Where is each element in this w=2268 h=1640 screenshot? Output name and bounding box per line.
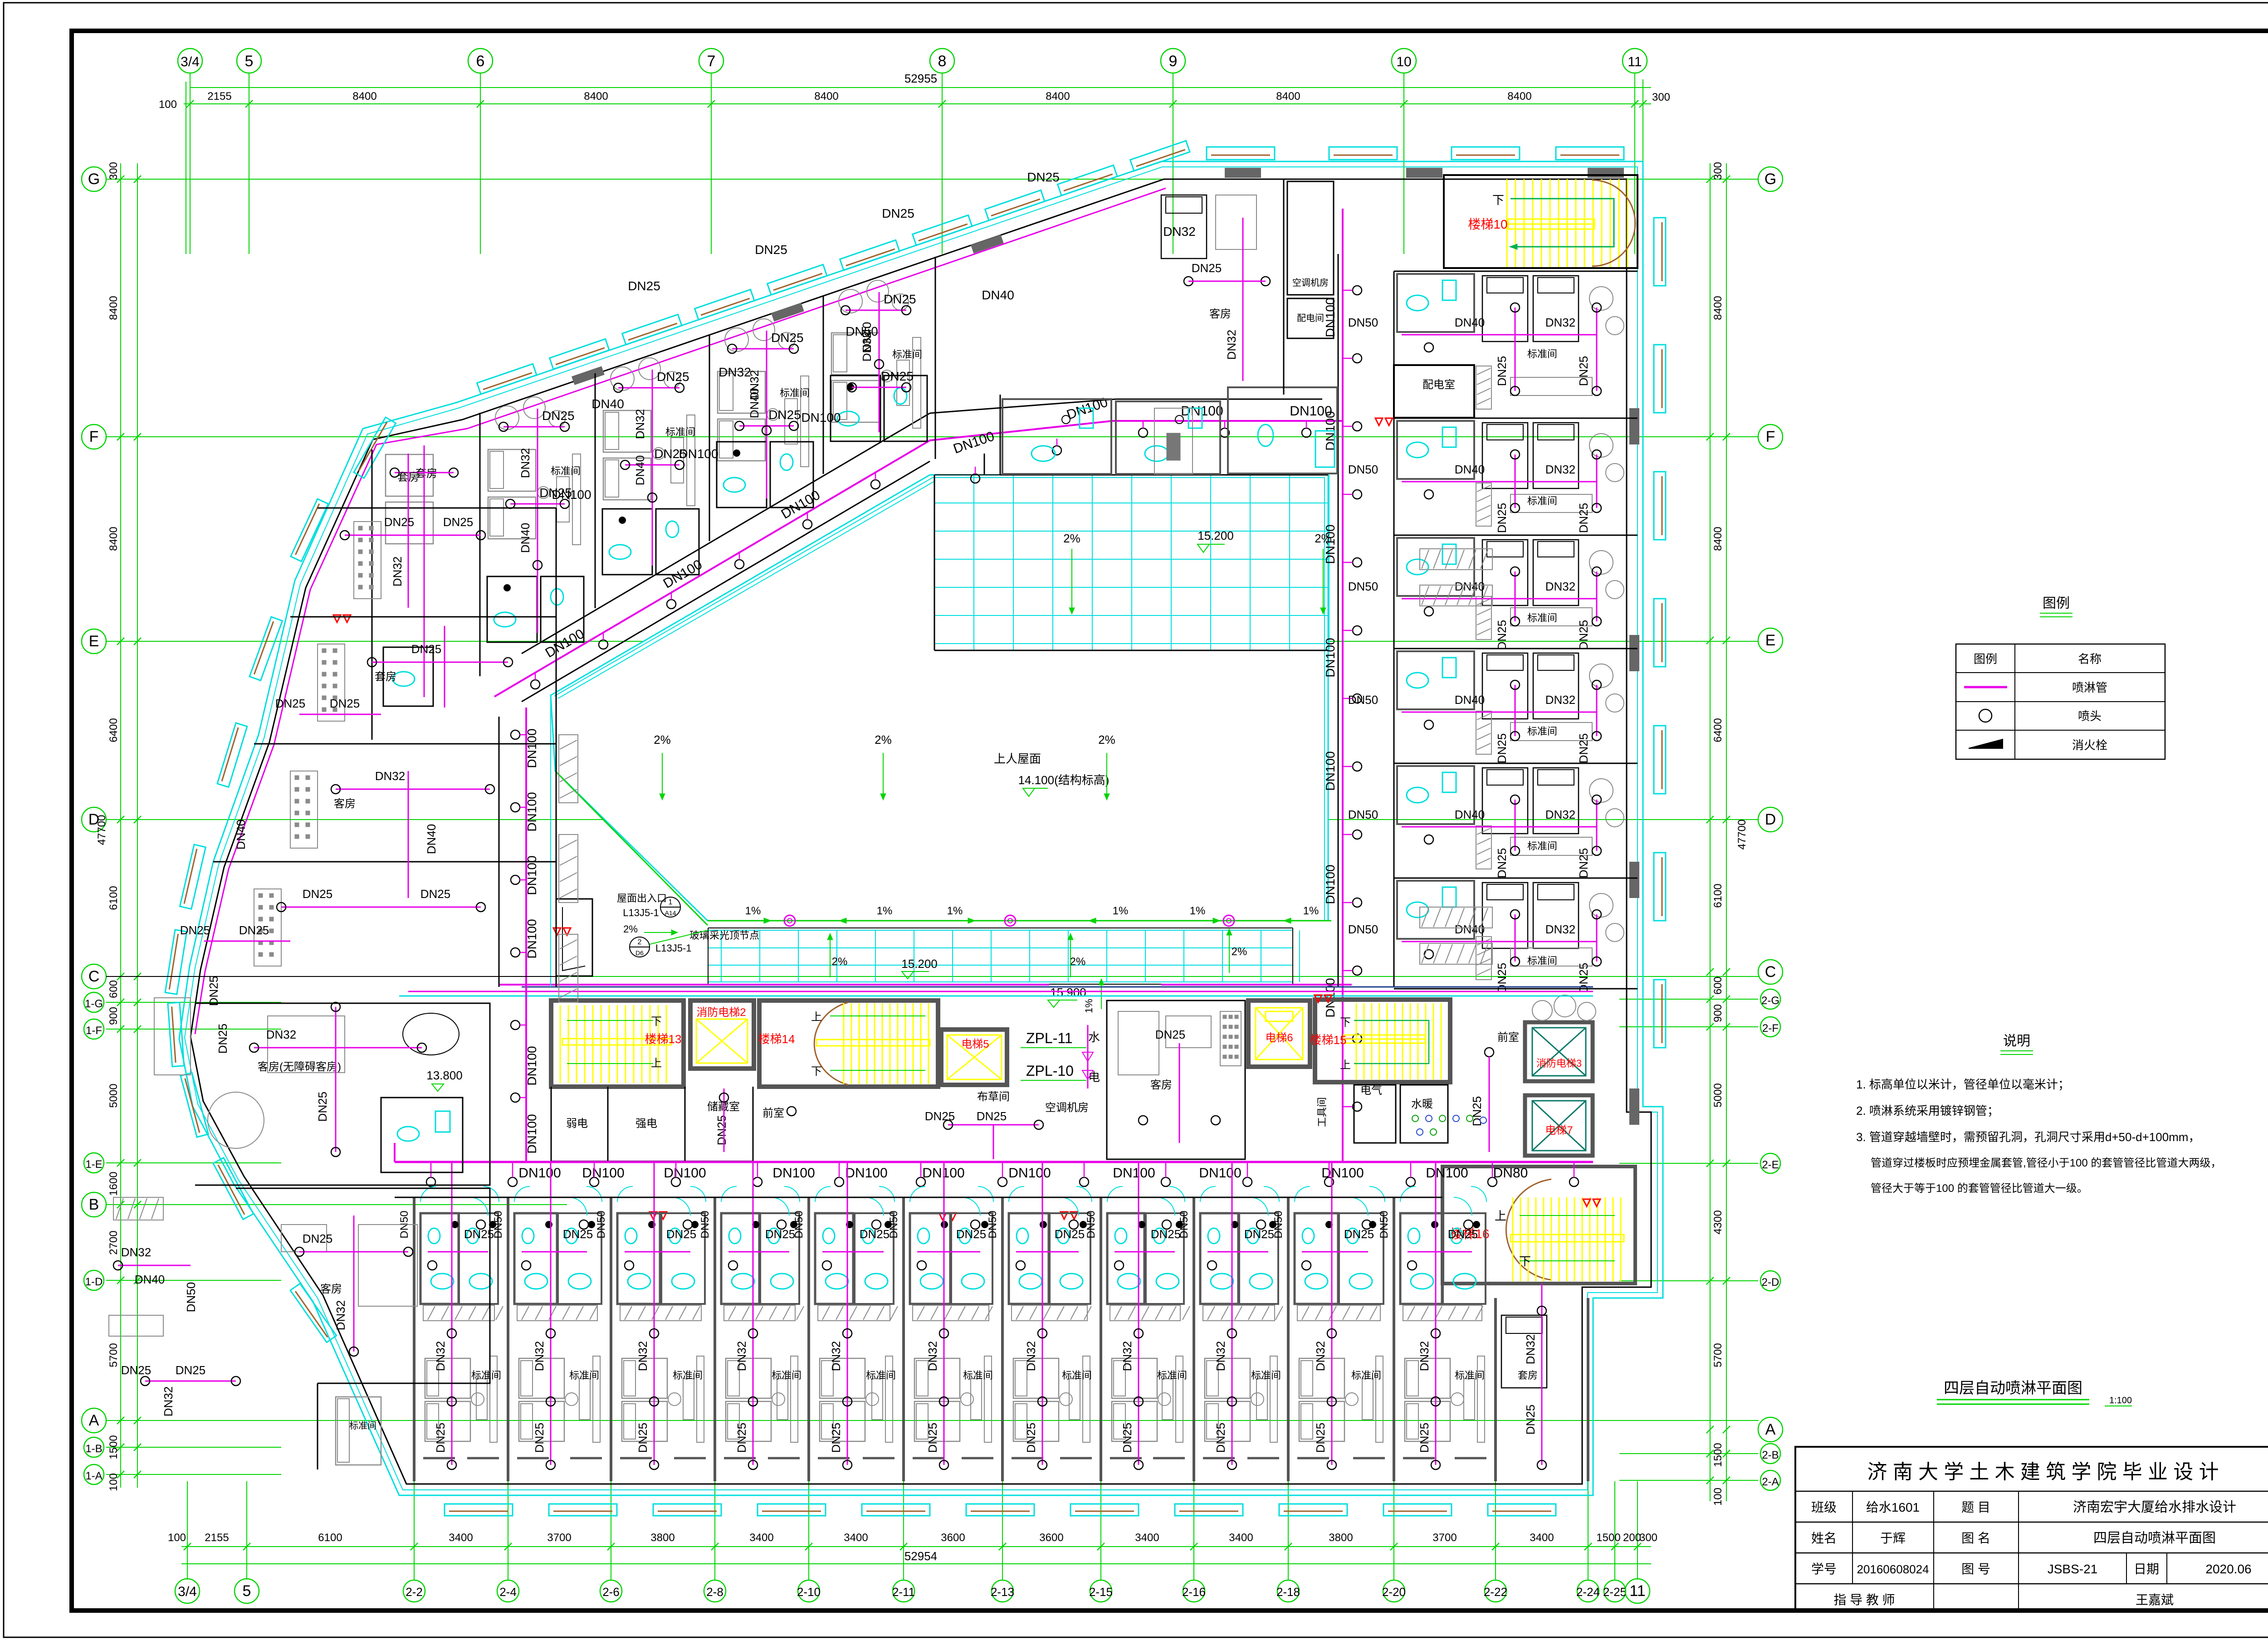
svg-text:900: 900 [108,1007,120,1025]
svg-text:标准间: 标准间 [772,1370,802,1381]
svg-text:2%: 2% [1232,946,1247,958]
svg-text:DN32: DN32 [633,409,647,439]
svg-text:套房: 套房 [1518,1370,1538,1381]
svg-text:DN32: DN32 [636,1341,650,1371]
svg-text:下: 下 [1492,193,1504,207]
svg-text:DN25: DN25 [1344,1227,1374,1241]
svg-text:电梯7: 电梯7 [1545,1124,1573,1137]
svg-text:DN40: DN40 [1455,808,1485,821]
svg-text:3400: 3400 [1229,1532,1253,1544]
svg-text:下: 下 [651,1015,662,1028]
svg-text:客房: 客房 [1209,308,1231,320]
svg-text:ZPL-11: ZPL-11 [1026,1030,1073,1046]
svg-text:A: A [1765,1421,1776,1438]
svg-text:2%: 2% [832,956,848,968]
svg-text:图例: 图例 [1974,652,1997,666]
svg-text:DN25: DN25 [1448,1227,1478,1241]
svg-text:DN32: DN32 [1214,1341,1227,1371]
svg-text:DN50: DN50 [1348,693,1378,707]
svg-text:1. 标高单位以米计，管径单位以毫米计；: 1. 标高单位以米计，管径单位以毫米计； [1856,1078,2070,1091]
svg-text:标准间: 标准间 [1527,726,1557,737]
svg-text:C: C [1765,963,1776,981]
svg-text:2-A: 2-A [1762,1476,1779,1488]
svg-text:标准间: 标准间 [892,349,922,360]
svg-text:11: 11 [1628,54,1642,69]
svg-text:3800: 3800 [650,1532,675,1544]
svg-text:说明: 说明 [2003,1034,2030,1049]
svg-text:DN100: DN100 [1323,638,1337,677]
svg-text:DN25: DN25 [420,887,450,901]
svg-text:DN32: DN32 [1524,1334,1537,1364]
svg-text:济 南 大 学 土 木 建 筑 学 院 毕 业 设 计: 济 南 大 学 土 木 建 筑 学 院 毕 业 设 计 [1867,1461,2219,1483]
svg-text:DN50: DN50 [595,1210,607,1238]
svg-text:空调机房: 空调机房 [1292,278,1329,288]
svg-text:学号: 学号 [1811,1562,1837,1576]
svg-text:下: 下 [1519,1254,1531,1268]
svg-text:DN32: DN32 [1314,1341,1327,1371]
svg-text:DN25: DN25 [384,515,414,529]
svg-text:6100: 6100 [318,1532,342,1544]
svg-text:工具间: 工具间 [1316,1097,1328,1127]
svg-text:DN25: DN25 [275,697,305,710]
svg-text:标准间: 标准间 [1527,612,1557,624]
svg-text:3400: 3400 [1135,1532,1159,1544]
svg-text:2%: 2% [1070,956,1086,968]
svg-text:8400: 8400 [1507,90,1531,102]
svg-text:2-D: 2-D [1762,1276,1779,1289]
svg-text:DN25: DN25 [881,369,914,383]
svg-text:DN25: DN25 [768,408,801,422]
svg-text:52955: 52955 [904,72,937,85]
svg-text:标准间: 标准间 [1251,1370,1281,1381]
svg-text:标准间: 标准间 [569,1370,599,1381]
svg-text:玻璃采光顶节点: 玻璃采光顶节点 [689,930,759,941]
svg-text:DN25: DN25 [666,1227,696,1241]
svg-text:屋面出入口: 屋面出入口 [617,893,667,904]
svg-text:1-A: 1-A [85,1470,102,1482]
svg-text:DN25: DN25 [1470,1096,1484,1126]
svg-text:DN100: DN100 [1323,524,1337,564]
svg-text:DN25: DN25 [1577,620,1590,650]
svg-text:DN25: DN25 [1314,1423,1327,1453]
svg-text:DN32: DN32 [719,365,751,379]
svg-text:标准间: 标准间 [1527,348,1557,360]
svg-text:DN50: DN50 [699,1210,711,1238]
svg-text:300: 300 [1652,91,1670,103]
svg-text:DN50: DN50 [1348,922,1378,936]
svg-text:DN25: DN25 [1577,848,1590,878]
svg-text:DN32: DN32 [1417,1341,1431,1371]
svg-text:给水1601: 给水1601 [1866,1500,1920,1514]
svg-text:标准间: 标准间 [551,465,581,477]
svg-text:DN25: DN25 [1417,1423,1431,1453]
svg-text:6100: 6100 [108,886,120,910]
svg-text:8: 8 [938,53,947,70]
svg-text:100: 100 [1712,1488,1724,1506]
svg-text:200: 200 [1623,1532,1641,1544]
svg-text:下: 下 [811,1065,822,1078]
svg-text:DN100: DN100 [518,1166,561,1181]
svg-text:2155: 2155 [207,90,231,102]
svg-text:2-20: 2-20 [1382,1585,1406,1599]
svg-text:名称: 名称 [2078,652,2102,666]
svg-text:DN50: DN50 [987,1210,999,1238]
svg-text:DN100: DN100 [1323,298,1337,337]
svg-text:8400: 8400 [108,527,120,551]
svg-text:2155: 2155 [205,1532,229,1544]
svg-text:DN32: DN32 [391,556,404,586]
svg-text:DN25: DN25 [1244,1227,1274,1241]
svg-text:DN25: DN25 [715,1115,728,1145]
svg-text:2-13: 2-13 [991,1585,1014,1599]
svg-text:DN25: DN25 [1577,733,1590,763]
svg-text:1-F: 1-F [86,1025,102,1037]
svg-text:DN100: DN100 [552,488,591,502]
svg-text:DN25: DN25 [1495,848,1509,878]
svg-text:DN32: DN32 [1545,922,1575,936]
svg-text:标准间: 标准间 [1062,1370,1092,1381]
svg-text:DN50: DN50 [184,1282,198,1312]
svg-text:2-10: 2-10 [797,1585,821,1599]
svg-text:DN40: DN40 [425,824,438,854]
svg-text:四层自动喷淋平面图: 四层自动喷淋平面图 [1944,1380,2082,1397]
svg-text:13.800: 13.800 [426,1069,463,1082]
svg-text:DN25: DN25 [542,409,575,423]
svg-text:DN40: DN40 [518,523,532,553]
svg-text:6400: 6400 [108,718,120,742]
svg-text:DN25: DN25 [1524,1405,1537,1435]
svg-text:B: B [89,1196,99,1213]
svg-text:上人屋面: 上人屋面 [994,752,1041,766]
svg-text:8400: 8400 [1276,90,1300,102]
svg-text:四层自动喷淋平面图: 四层自动喷淋平面图 [2093,1531,2216,1546]
svg-text:15.200: 15.200 [1198,529,1234,542]
svg-text:3400: 3400 [449,1532,473,1544]
svg-text:300: 300 [1639,1532,1657,1544]
svg-text:DN25: DN25 [1155,1028,1185,1041]
svg-text:DN25: DN25 [239,923,269,937]
svg-text:DN32: DN32 [121,1245,151,1259]
svg-text:2%: 2% [875,733,892,747]
svg-text:DN25: DN25 [443,515,473,529]
svg-text:喷淋管: 喷淋管 [2072,681,2107,694]
svg-text:1-D: 1-D [85,1276,103,1288]
svg-text:2-24: 2-24 [1576,1585,1600,1599]
svg-text:标准间: 标准间 [1527,495,1557,507]
svg-text:DN40: DN40 [234,820,248,849]
svg-text:DN100: DN100 [525,1046,539,1085]
svg-text:DN32: DN32 [266,1028,296,1041]
svg-text:DN32: DN32 [1545,808,1575,821]
svg-text:DN25: DN25 [1495,356,1509,386]
svg-text:DN25: DN25 [1151,1227,1181,1241]
svg-text:客房: 客房 [334,798,356,810]
svg-text:DN25: DN25 [1214,1423,1227,1453]
svg-text:DN100: DN100 [1321,1166,1364,1181]
svg-text:DN32: DN32 [1545,316,1575,329]
svg-text:52954: 52954 [904,1549,937,1563]
svg-text:2-11: 2-11 [892,1585,915,1599]
svg-text:消防电梯3: 消防电梯3 [1536,1058,1582,1069]
svg-text:DN100: DN100 [1008,1166,1051,1181]
svg-text:100: 100 [168,1532,186,1544]
svg-text:标准间: 标准间 [471,1370,501,1381]
svg-text:DN50: DN50 [492,1210,504,1238]
svg-text:客房(无障碍客房): 客房(无障碍客房) [258,1061,341,1073]
svg-text:前室: 前室 [1497,1031,1519,1044]
svg-text:DN32: DN32 [735,1341,748,1371]
svg-text:2-25: 2-25 [1603,1585,1627,1599]
svg-text:5: 5 [243,1582,251,1600]
svg-text:8400: 8400 [108,296,120,320]
svg-text:11: 11 [1629,1582,1645,1600]
svg-text:DN25: DN25 [1024,1423,1038,1453]
svg-text:电: 电 [1088,1070,1100,1084]
svg-text:DN25: DN25 [316,1092,329,1122]
svg-text:DN32: DN32 [518,448,532,478]
svg-text:3700: 3700 [547,1532,571,1544]
svg-text:上: 上 [1340,1059,1351,1071]
svg-text:DN32: DN32 [375,769,405,783]
svg-text:DN25: DN25 [1577,963,1590,993]
svg-text:DN25: DN25 [1495,963,1509,993]
svg-text:DN25: DN25 [1027,170,1060,184]
svg-text:2-16: 2-16 [1182,1585,1206,1599]
svg-text:3/4: 3/4 [178,1584,197,1599]
svg-text:弱电: 弱电 [566,1118,588,1130]
svg-text:8400: 8400 [352,90,376,102]
svg-text:2. 喷淋系统采用镀锌钢管；: 2. 喷淋系统采用镀锌钢管； [1856,1104,1999,1118]
svg-text:标准间: 标准间 [349,1420,376,1431]
svg-text:2-4: 2-4 [499,1585,517,1599]
svg-text:1: 1 [669,898,673,906]
svg-text:电气: 电气 [1360,1084,1382,1097]
svg-text:1%: 1% [1113,905,1129,917]
svg-text:DN25: DN25 [121,1363,151,1377]
svg-text:标准间: 标准间 [1157,1370,1187,1381]
svg-text:客房: 客房 [1150,1079,1172,1091]
svg-text:DN40: DN40 [982,288,1014,302]
svg-text:3700: 3700 [1432,1532,1457,1544]
svg-text:DN25: DN25 [180,923,210,937]
svg-text:E: E [1765,632,1776,649]
svg-text:DN50: DN50 [1272,1210,1285,1238]
svg-text:DN100: DN100 [1323,751,1337,791]
svg-text:DN40: DN40 [591,397,624,411]
svg-text:DN100: DN100 [525,792,539,831]
svg-text:DN25: DN25 [956,1227,986,1241]
svg-text:8400: 8400 [1712,296,1724,320]
svg-text:1%: 1% [877,905,893,917]
svg-text:6100: 6100 [1712,883,1724,908]
svg-text:标准间: 标准间 [1527,840,1557,852]
svg-text:班级: 班级 [1811,1500,1837,1514]
svg-text:DN100: DN100 [679,447,718,461]
svg-text:楼梯14: 楼梯14 [758,1032,795,1046]
svg-text:1%: 1% [745,905,761,917]
svg-text:ZPL-10: ZPL-10 [1026,1063,1074,1079]
svg-text:300: 300 [1712,162,1724,180]
svg-text:A14: A14 [665,909,676,917]
svg-text:DN25: DN25 [657,370,689,384]
svg-text:1500: 1500 [1596,1532,1620,1544]
svg-text:客房: 客房 [320,1283,342,1295]
svg-text:3. 管道穿越墙壁时，需预留孔洞，孔洞尺寸采用d+50-d+: 3. 管道穿越墙壁时，需预留孔洞，孔洞尺寸采用d+50-d+100mm， [1856,1130,2200,1144]
svg-text:2-G: 2-G [1761,995,1779,1007]
svg-text:100: 100 [108,1473,120,1491]
svg-text:DN32: DN32 [1545,693,1575,707]
svg-text:DN40: DN40 [1455,316,1485,329]
svg-text:DN50: DN50 [1348,316,1378,329]
svg-text:DN50: DN50 [1085,1210,1097,1238]
svg-text:D6: D6 [635,949,644,957]
svg-text:2-6: 2-6 [602,1585,620,1599]
svg-text:8400: 8400 [814,90,838,102]
svg-text:DN100: DN100 [582,1166,624,1181]
svg-text:DN25: DN25 [771,331,804,345]
svg-text:6: 6 [476,53,485,70]
svg-text:DN25: DN25 [1192,261,1222,275]
svg-text:1-B: 1-B [85,1443,102,1455]
svg-text:楼梯15: 楼梯15 [1310,1033,1347,1047]
svg-text:DN40: DN40 [748,388,761,418]
svg-text:L13J5-1: L13J5-1 [655,942,692,954]
svg-text:2-2: 2-2 [406,1585,423,1599]
svg-text:布草间: 布草间 [977,1091,1010,1103]
svg-text:14.100(结构标高): 14.100(结构标高) [1018,773,1110,787]
svg-text:1500: 1500 [1712,1443,1724,1467]
svg-text:DN40: DN40 [1455,693,1485,707]
svg-text:DN32: DN32 [334,1300,347,1330]
svg-text:DN25: DN25 [636,1423,650,1453]
svg-text:于辉: 于辉 [1880,1531,1906,1545]
svg-text:DN25: DN25 [176,1363,205,1377]
svg-text:1%: 1% [1190,905,1206,917]
svg-text:标准间: 标准间 [665,426,695,438]
svg-text:D: D [1765,811,1776,828]
svg-text:喷头: 喷头 [2078,709,2102,723]
svg-text:DN50: DN50 [888,1210,900,1238]
svg-text:DN32: DN32 [1225,330,1238,360]
svg-text:DN100: DN100 [772,1166,815,1181]
svg-text:2-F: 2-F [1762,1022,1779,1035]
svg-text:G: G [1765,171,1776,188]
svg-text:姓名: 姓名 [1811,1531,1837,1545]
svg-text:DN100: DN100 [525,728,539,768]
svg-text:标准间: 标准间 [673,1370,703,1381]
svg-text:2-15: 2-15 [1089,1585,1113,1599]
svg-text:水: 水 [1088,1030,1100,1044]
svg-text:电梯6: 电梯6 [1265,1032,1293,1044]
svg-text:楼梯10: 楼梯10 [1468,217,1507,231]
svg-text:DN50: DN50 [1348,463,1378,476]
svg-text:8400: 8400 [1046,90,1070,102]
svg-text:DN25: DN25 [1120,1423,1134,1453]
svg-text:DN40: DN40 [1455,580,1485,593]
svg-text:DN32: DN32 [1024,1341,1038,1371]
svg-text:1-E: 1-E [85,1158,102,1171]
svg-text:5700: 5700 [1712,1343,1724,1367]
svg-text:2%: 2% [1063,532,1080,545]
svg-text:消防电梯2: 消防电梯2 [696,1006,746,1019]
svg-text:DN25: DN25 [434,1423,447,1453]
svg-text:DN25: DN25 [1495,733,1509,763]
svg-text:标准间: 标准间 [963,1370,993,1381]
svg-text:DN100: DN100 [1323,864,1337,904]
svg-text:300: 300 [108,162,120,180]
svg-text:DN25: DN25 [303,1232,332,1245]
svg-text:3400: 3400 [749,1532,773,1544]
svg-text:DN25: DN25 [926,1423,939,1453]
svg-text:G: G [88,171,100,188]
svg-text:DN25: DN25 [1577,503,1590,533]
svg-text:DN50: DN50 [1378,1210,1390,1238]
svg-text:3800: 3800 [1329,1532,1353,1544]
svg-text:水暖: 水暖 [1411,1098,1433,1110]
svg-text:楼梯13: 楼梯13 [645,1032,682,1046]
svg-text:1-G: 1-G [85,998,103,1010]
svg-text:5000: 5000 [108,1084,120,1108]
svg-text:DN25: DN25 [765,1227,795,1241]
svg-text:DN100: DN100 [1199,1166,1241,1181]
svg-text:3600: 3600 [941,1532,965,1544]
svg-text:DN100: DN100 [525,1114,539,1153]
svg-text:DN32: DN32 [533,1341,546,1371]
svg-text:C: C [88,968,100,985]
svg-text:标准间: 标准间 [780,387,810,399]
svg-text:A: A [89,1412,99,1429]
svg-text:1%: 1% [1083,999,1095,1013]
svg-text:消火栓: 消火栓 [2072,738,2107,752]
svg-text:DN25: DN25 [1055,1227,1085,1241]
svg-text:5: 5 [245,53,254,70]
svg-text:3/4: 3/4 [181,54,200,69]
svg-text:DN25: DN25 [860,1227,890,1241]
svg-text:1%: 1% [1303,905,1319,917]
svg-text:600: 600 [108,980,120,998]
svg-text:7: 7 [707,53,716,70]
svg-text:2-18: 2-18 [1276,1585,1300,1599]
svg-text:E: E [89,633,99,650]
svg-text:F: F [1766,428,1775,445]
svg-text:王嘉斌: 王嘉斌 [2136,1593,2174,1607]
svg-text:DN32: DN32 [1545,463,1575,476]
svg-text:6400: 6400 [1712,718,1724,742]
svg-text:3400: 3400 [844,1532,868,1544]
svg-text:DN32: DN32 [1545,580,1575,593]
svg-text:8400: 8400 [1712,527,1724,551]
svg-text:1500: 1500 [108,1435,120,1459]
svg-text:标准间: 标准间 [1351,1370,1381,1381]
svg-text:DN100: DN100 [845,1166,887,1181]
svg-text:济南宏宇大厦给水排水设计: 济南宏宇大厦给水排水设计 [2073,1500,2236,1515]
svg-text:上: 上 [651,1057,662,1069]
svg-text:标准间: 标准间 [866,1370,896,1381]
svg-text:2%: 2% [623,923,638,935]
svg-text:100: 100 [159,98,177,111]
svg-text:2-B: 2-B [1762,1449,1779,1461]
svg-text:DN50: DN50 [1348,808,1378,821]
svg-text:5700: 5700 [108,1343,120,1367]
svg-text:1600: 1600 [108,1171,120,1196]
svg-text:L13J5-1: L13J5-1 [623,907,659,918]
svg-text:3600: 3600 [1039,1532,1063,1544]
svg-text:20160608024: 20160608024 [1857,1562,1929,1576]
svg-text:DN25: DN25 [628,279,660,293]
svg-text:10: 10 [1396,54,1411,69]
svg-text:DN25: DN25 [829,1423,843,1453]
svg-text:DN25: DN25 [1495,503,1509,533]
